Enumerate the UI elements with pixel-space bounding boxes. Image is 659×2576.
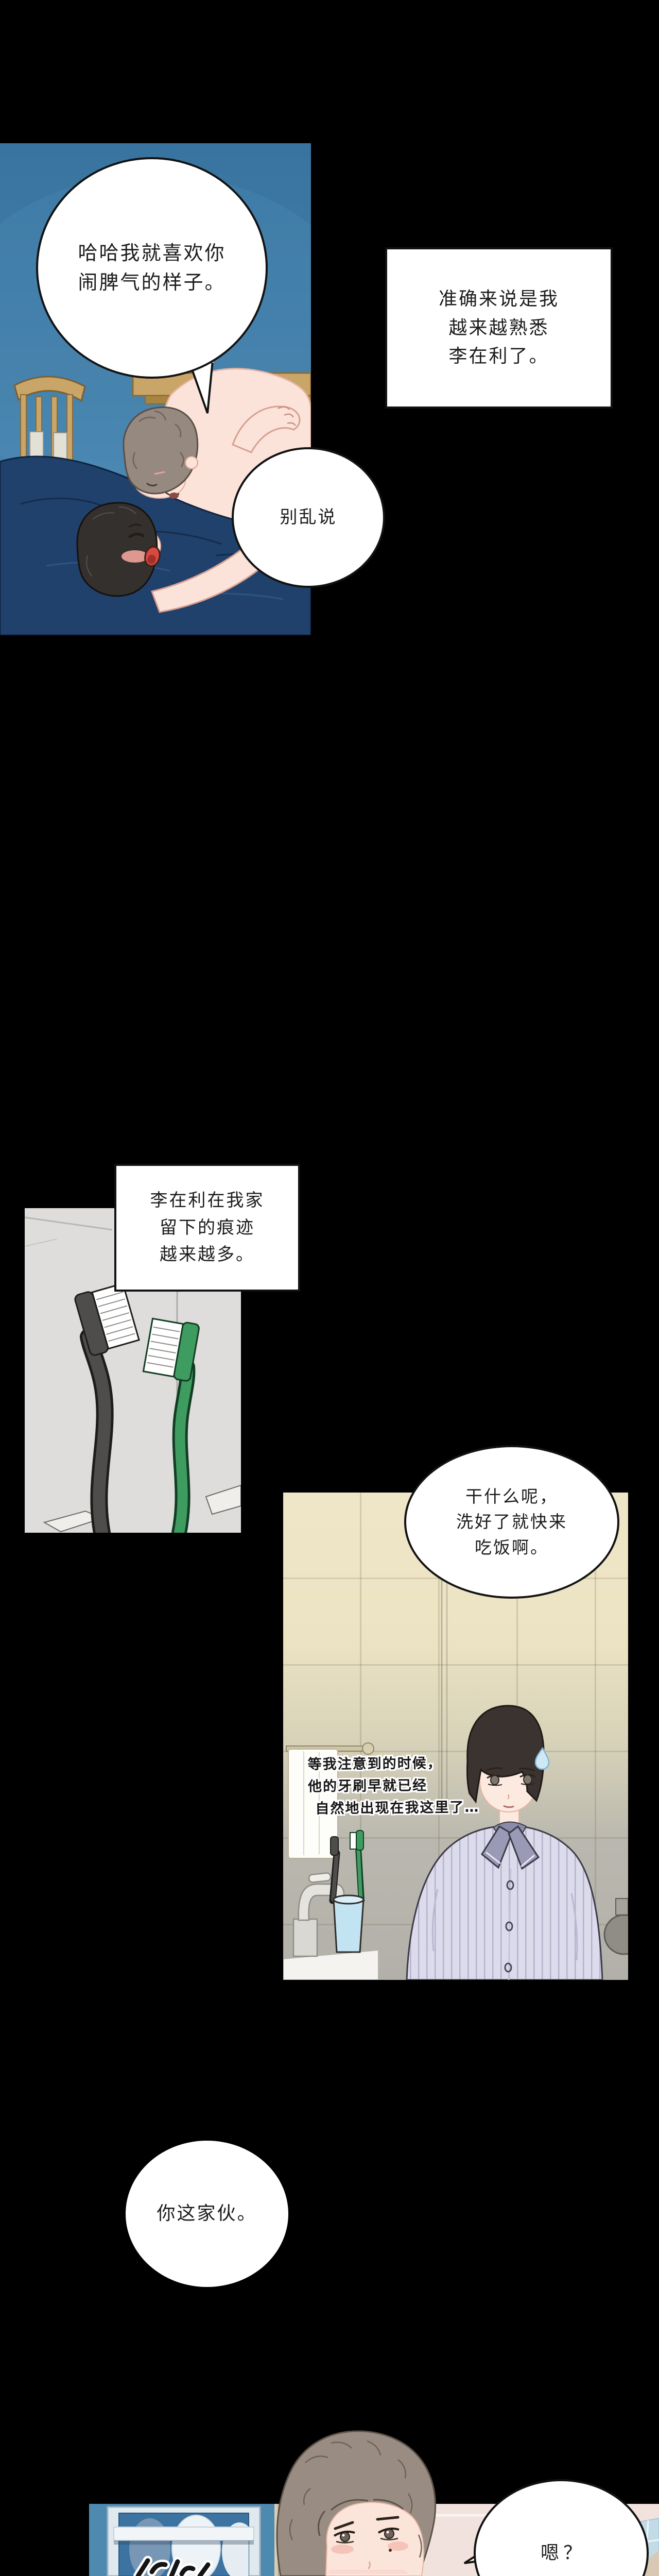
bubble-text: 干什么呢， [465,1484,558,1510]
bubble-text: 你这家伙。 [157,2200,257,2228]
character-pajamas [407,1706,602,1980]
caption-text: 等我注意到的时候， [307,1752,479,1776]
ear [185,456,198,469]
speech-bubble-1: 哈哈我就喜欢你 闹脾气的样子。 [36,157,268,379]
bubble-text: 嗯？ [536,2539,586,2567]
bubble-text: 哈哈我就喜欢你 [78,239,226,268]
speech-bubble-4: 你这家伙。 [126,2141,288,2287]
page: { "page_type": "webtoon-comic-page", "sp… [0,0,659,2576]
caption-text: 他的牙刷早就已经 [308,1774,479,1798]
shower-holder [604,1899,628,1954]
toothbrush-dark-small [331,1837,338,1855]
narration-text: 李在利了。 [448,342,549,371]
bubble-text: 闹脾气的样子。 [78,268,226,297]
narration-box-1: 准确来说是我 越来越熟悉 李在利了。 [385,247,613,409]
bubble-text: 洗好了就快来 [456,1509,567,1535]
niche-shelf [114,2527,254,2540]
speech-bubble-2: 别乱说 [232,447,385,588]
toothbrush-dark [74,1282,140,1533]
toothbrush-cup [331,1831,363,1952]
inner-monologue-caption: 等我注意到的时候， 他的牙刷早就已经 自然地出现在我这里了… [307,1752,479,1820]
character-curly-head [277,2431,436,2576]
toothbrush-green-small [356,1831,363,1850]
speech-bubble-3: 干什么呢， 洗好了就快来 吃饭啊。 [404,1445,619,1599]
shelf-edges [44,1485,241,1532]
bubble-text: 别乱说 [280,504,337,531]
bubble-text: 吃饭啊。 [475,1535,549,1561]
narration-text: 越来越多。 [160,1241,255,1268]
narration-text: 留下的痕迹 [160,1214,255,1242]
narration-text: 李在利在我家 [150,1187,265,1214]
blush [122,550,148,563]
shirt-sliver [326,2570,408,2574]
narration-box-2: 李在利在我家 留下的痕迹 越来越多。 [114,1164,300,1292]
mole [389,2549,392,2552]
narration-text: 越来越熟悉 [448,314,549,343]
caption-text: 自然地出现在我这里了… [308,1797,479,1820]
blush [331,2545,354,2554]
narration-text: 准确来说是我 [439,285,559,314]
toothbrush-green [143,1316,200,1533]
